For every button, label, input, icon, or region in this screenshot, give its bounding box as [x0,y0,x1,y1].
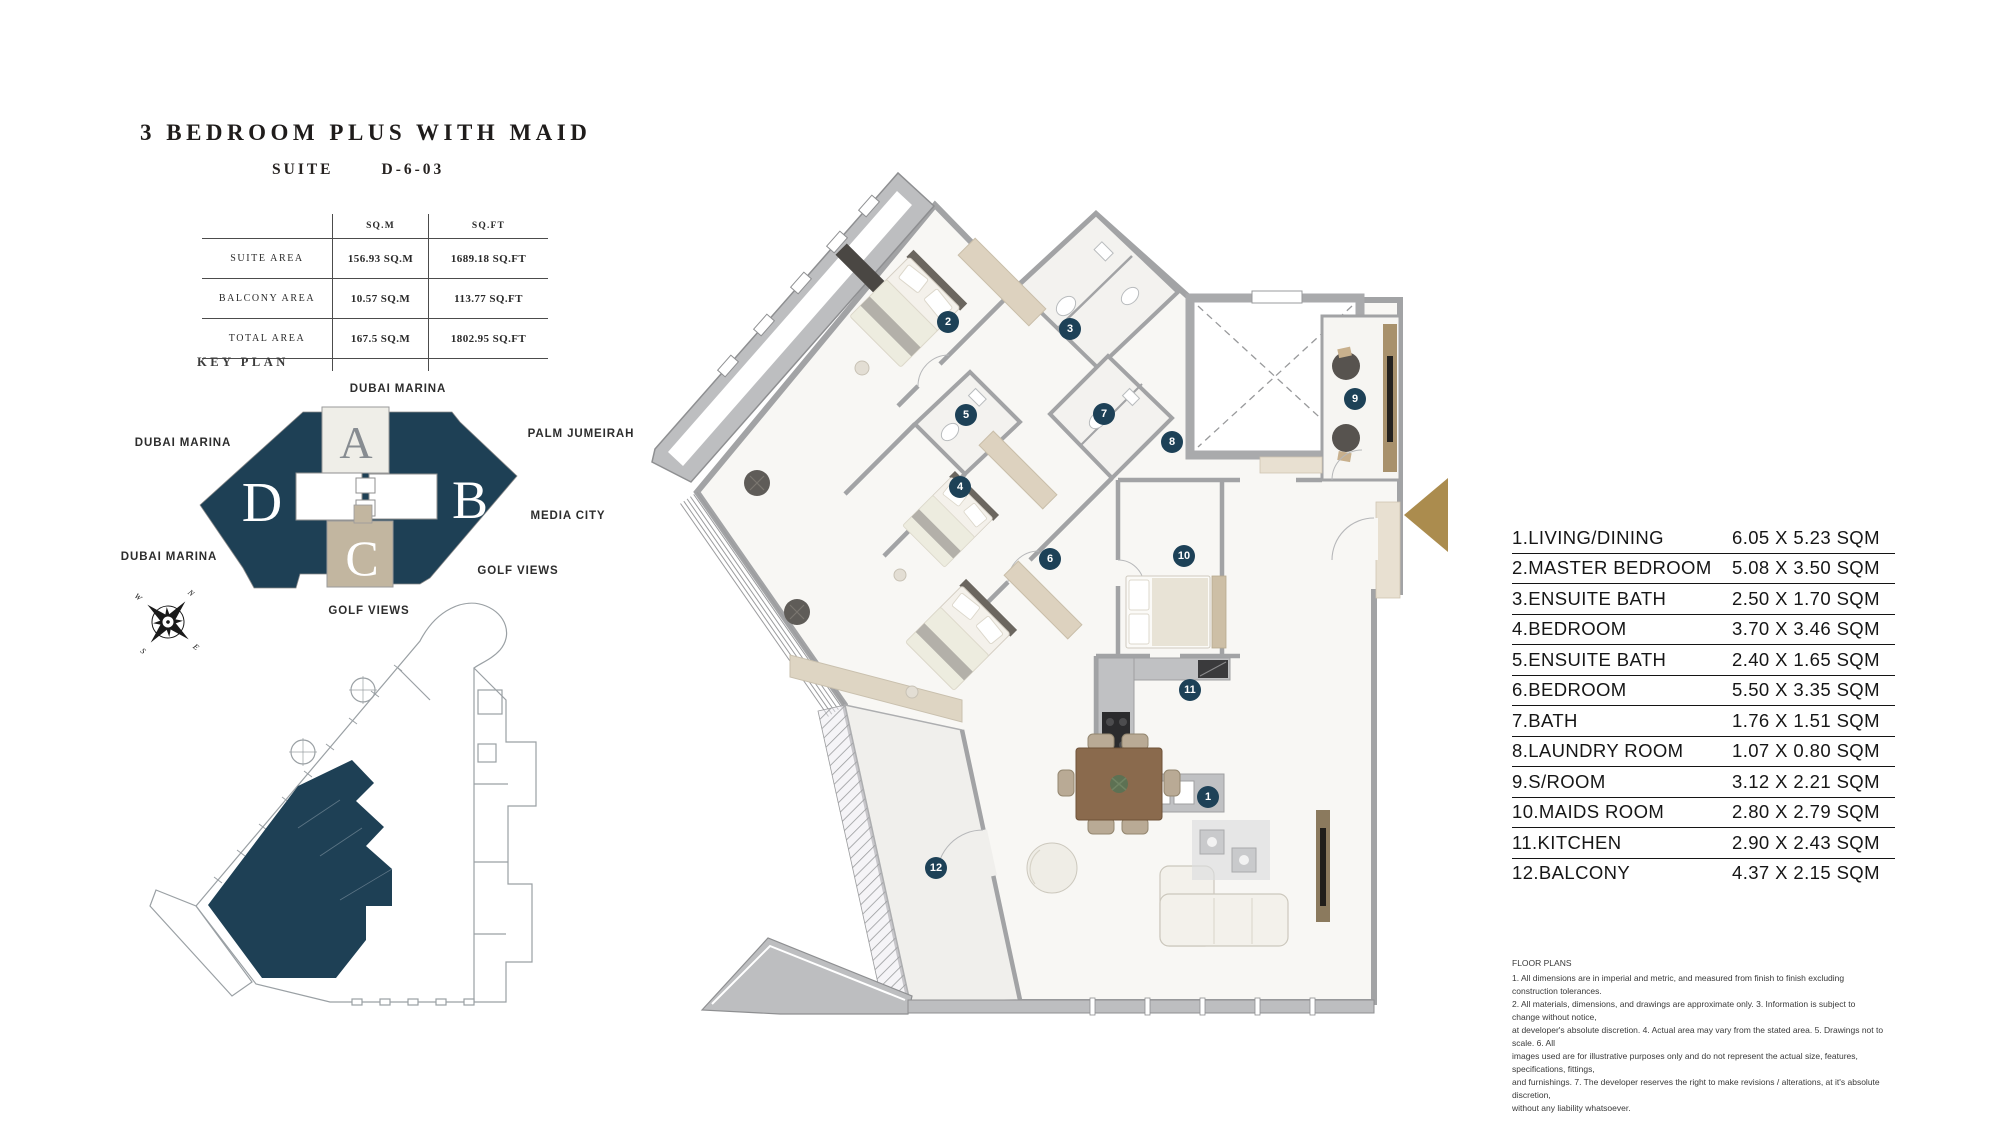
floor-plan-page: { "header": { "title": "3 BEDROOM PLUS W… [0,0,2000,1125]
label-media-city: MEDIA CITY [530,510,605,522]
disclaimer: FLOOR PLANS 1. All dimensions are in imp… [1512,958,1884,1115]
area-table-row: BALCONY AREA10.57 SQ.M113.77 SQ.FT [202,278,548,318]
suite-line: SUITE D-6-03 [272,161,444,179]
room-list-row: 7.BATH1.76 X 1.51 SQM [1512,706,1895,737]
room-number-marker: 8 [1161,431,1183,453]
key-plan-section-c: C [345,533,378,583]
room-number-marker: 9 [1344,388,1366,410]
label-dubai-marina-left: DUBAI MARINA [135,437,231,449]
label-dubai-marina-top: DUBAI MARINA [350,383,446,395]
room-list-row: 5.ENSUITE BATH2.40 X 1.65 SQM [1512,645,1895,676]
page-title: 3 BEDROOM PLUS WITH MAID [140,120,591,146]
room-number-marker: 2 [937,311,959,333]
room-list-row: 6.BEDROOM5.50 X 3.35 SQM [1512,676,1895,707]
compass-north-label: N [186,588,196,598]
room-list-row: 10.MAIDS ROOM2.80 X 2.79 SQM [1512,798,1895,829]
disclaimer-heading: FLOOR PLANS [1512,958,1884,968]
compass-east-label: E [191,642,201,652]
room-list-row: 9.S/ROOM3.12 X 2.21 SQM [1512,767,1895,798]
sqm-column-header: SQ.M [332,214,428,238]
room-number-marker: 4 [949,476,971,498]
room-list-row: 11.KITCHEN2.90 X 2.43 SQM [1512,828,1895,859]
disclaimer-line: and furnishings. 7. The developer reserv… [1512,1076,1884,1102]
room-number-marker: 7 [1093,403,1115,425]
room-list-row: 3.ENSUITE BATH2.50 X 1.70 SQM [1512,584,1895,615]
disclaimer-line: without any liability whatsoever. [1512,1102,1884,1115]
key-plan-section-a: A [339,420,372,466]
disclaimer-line: 1. All dimensions are in imperial and me… [1512,972,1884,998]
suite-number: D-6-03 [382,161,445,179]
key-plan-section-d: D [242,475,282,531]
disclaimer-line: 2. All materials, dimensions, and drawin… [1512,998,1884,1024]
main-floor-plan-graphic [652,173,1448,1015]
suite-label: SUITE [272,161,334,179]
room-number-marker: 11 [1179,679,1201,701]
room-dimension-list: 1.LIVING/DINING6.05 X 5.23 SQM2.MASTER B… [1512,523,1895,888]
label-dubai-marina-bottom: DUBAI MARINA [121,551,217,563]
label-palm-jumeirah: PALM JUMEIRAH [528,428,635,440]
entry-arrow-icon [1404,478,1448,552]
area-table-row: TOTAL AREA167.5 SQ.M1802.95 SQ.FT [202,318,548,358]
room-list-row: 12.BALCONY4.37 X 2.15 SQM [1512,859,1895,889]
label-golf-views-bottom: GOLF VIEWS [328,605,409,617]
compass-west-label: W [133,591,144,602]
key-plan-heading: KEY PLAN [197,355,289,370]
room-list-row: 1.LIVING/DINING6.05 X 5.23 SQM [1512,523,1895,554]
area-table-header: SQ.M SQ.FT [202,214,548,238]
room-number-marker: 12 [925,857,947,879]
location-plan-graphic [150,603,536,1005]
room-number-marker: 1 [1197,786,1219,808]
sqft-column-header: SQ.FT [428,214,548,238]
label-golf-views-right: GOLF VIEWS [477,565,558,577]
room-list-row: 2.MASTER BEDROOM5.08 X 3.50 SQM [1512,554,1895,585]
disclaimer-line: images used are for illustrative purpose… [1512,1050,1884,1076]
key-plan-section-b: B [452,473,488,527]
room-list-row: 4.BEDROOM3.70 X 3.46 SQM [1512,615,1895,646]
area-table: SQ.M SQ.FT SUITE AREA156.93 SQ.M1689.18 … [202,214,548,371]
room-number-marker: 6 [1039,548,1061,570]
area-table-row: SUITE AREA156.93 SQ.M1689.18 SQ.FT [202,238,548,278]
room-number-marker: 3 [1059,318,1081,340]
disclaimer-line: at developer's absolute discretion. 4. A… [1512,1024,1884,1050]
room-number-marker: 10 [1173,545,1195,567]
room-list-row: 8.LAUNDRY ROOM1.07 X 0.80 SQM [1512,737,1895,768]
room-number-marker: 5 [955,404,977,426]
compass-south-label: S [139,646,148,655]
